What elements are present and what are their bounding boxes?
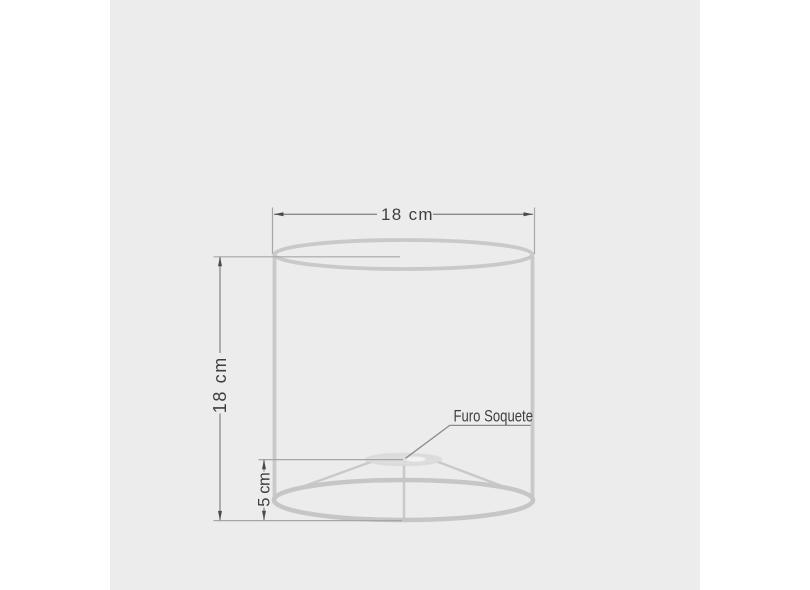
svg-text:5 cm: 5 cm <box>256 472 274 507</box>
svg-text:18 cm: 18 cm <box>381 205 433 224</box>
svg-text:Furo Soquete: Furo Soquete <box>454 407 534 426</box>
svg-text:18 cm: 18 cm <box>210 358 230 414</box>
